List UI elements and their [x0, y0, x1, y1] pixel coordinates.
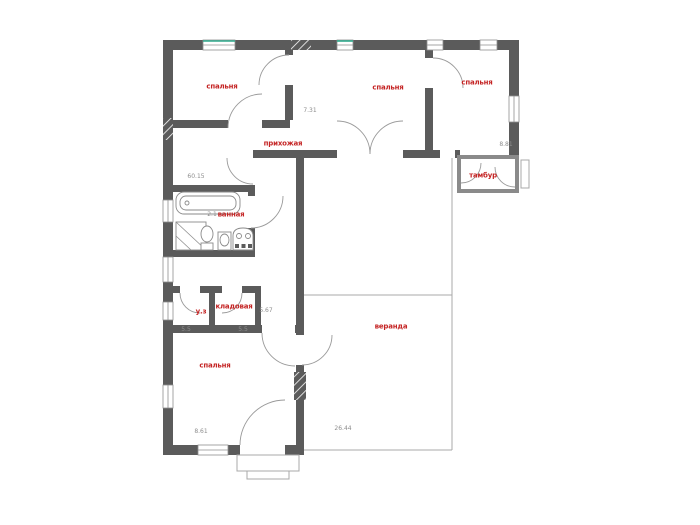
room-label-wc: у.з [196, 309, 207, 316]
room-label-veranda: веранда [375, 324, 408, 331]
dim-dim-pantry: 5.67 [259, 308, 272, 314]
dim-dim-bed2: 7.31 [303, 108, 316, 114]
room-label-bedroom-2: спальня [372, 85, 403, 92]
room-label-vestibule: тамбур [469, 173, 497, 180]
dim-dim-veranda: 26.44 [334, 426, 351, 432]
dim-dim-pantry2: 5.5 [238, 327, 248, 333]
dim-dim-hall: 60.15 [187, 174, 204, 180]
dim-dim-bath: 2.1 [207, 212, 217, 218]
room-label-bedroom-3: спальня [461, 80, 492, 87]
room-label-bedroom-4: спальня [199, 363, 230, 370]
room-label-hallway: прихожая [264, 141, 303, 148]
room-label-bathroom: ванная [218, 212, 245, 219]
floor-plan: спальняспальняспальняприхожаяваннаятамбу… [0, 0, 700, 525]
dim-dim-bed4: 8.61 [194, 429, 207, 435]
labels-layer: спальняспальняспальняприхожаяваннаятамбу… [0, 0, 700, 525]
dim-dim-wc: 5.5 [181, 327, 191, 333]
dim-dim-bed3: 8.81 [499, 142, 512, 148]
room-label-bedroom-1: спальня [206, 84, 237, 91]
room-label-pantry: кладовая [215, 304, 252, 311]
